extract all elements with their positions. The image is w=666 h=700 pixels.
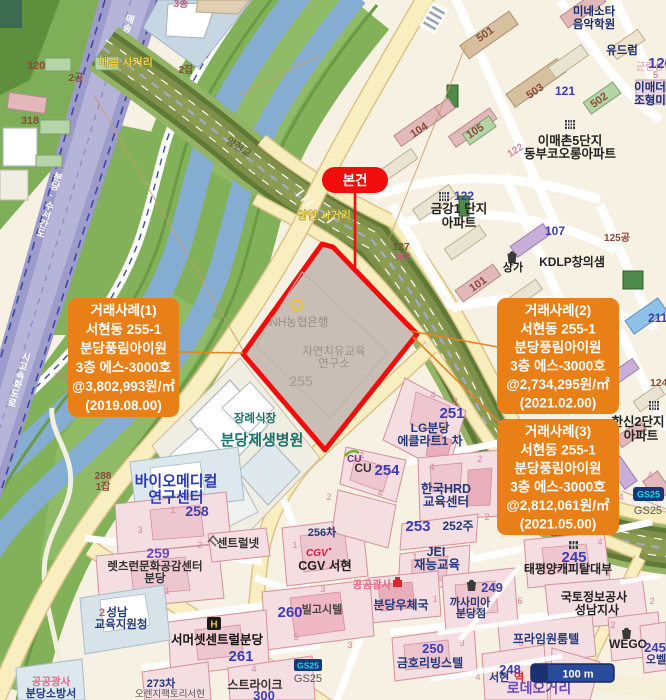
svg-text:245: 245 (644, 640, 666, 655)
svg-text:음악학원: 음악학원 (573, 17, 615, 31)
svg-text:GS25: GS25 (637, 490, 660, 500)
svg-text:254: 254 (374, 462, 400, 479)
svg-text:1잡: 1잡 (96, 481, 112, 493)
svg-text:1: 1 (432, 594, 437, 604)
svg-text:4: 4 (429, 462, 434, 472)
svg-text:분당풍림아이원: 분당풍림아이원 (515, 460, 602, 476)
svg-text:251: 251 (439, 405, 464, 422)
svg-text:CU: CU (354, 461, 371, 475)
svg-text:빌고시텔: 빌고시텔 (302, 602, 342, 616)
svg-text:공공광사: 공공광사 (32, 675, 71, 688)
svg-text:이매촌5단지: 이매촌5단지 (538, 133, 602, 148)
svg-text:256차: 256차 (308, 525, 337, 539)
svg-text:2: 2 (99, 607, 105, 619)
svg-text:동부코오롱아파트: 동부코오롱아파트 (524, 146, 617, 161)
svg-text:아파트: 아파트 (442, 215, 477, 230)
svg-text:GS25: GS25 (634, 505, 662, 517)
svg-text:3층 에스-3000호: 3층 에스-3000호 (510, 359, 606, 374)
svg-text:162: 162 (393, 251, 411, 263)
svg-text:318: 318 (21, 115, 39, 127)
svg-text:2: 2 (326, 492, 331, 502)
svg-text:@2,812,061원/㎡: @2,812,061원/㎡ (507, 497, 610, 513)
svg-text:서머셋센트럴분당: 서머셋센트럴분당 (171, 632, 264, 647)
svg-text:서현동 255-1: 서현동 255-1 (86, 322, 162, 337)
svg-text:211: 211 (648, 311, 666, 325)
svg-text:CGV: CGV (306, 548, 329, 559)
svg-text:GS25: GS25 (297, 661, 319, 671)
svg-text:프라임원룸텔: 프라임원룸텔 (513, 631, 579, 646)
svg-text:@3,802,993원/㎡: @3,802,993원/㎡ (72, 378, 175, 394)
svg-text:렛츠런문화공감센터: 렛츠런문화공감센터 (107, 559, 202, 573)
svg-text:5: 5 (293, 632, 298, 642)
svg-text:2: 2 (484, 512, 489, 522)
svg-text:분당: 분당 (144, 571, 166, 585)
svg-text:(2019.08.00): (2019.08.00) (85, 398, 162, 413)
svg-text:2: 2 (610, 620, 615, 630)
svg-text:미네소타: 미네소타 (573, 4, 616, 18)
svg-text:CGV 서현: CGV 서현 (298, 558, 352, 573)
svg-text:WEGO: WEGO (609, 637, 647, 651)
svg-text:1: 1 (164, 586, 169, 596)
svg-text:금강1 단지: 금강1 단지 (431, 201, 487, 216)
svg-text:125공: 125공 (604, 232, 630, 244)
svg-text:249: 249 (481, 580, 503, 595)
svg-text:분당제생병원: 분당제생병원 (221, 431, 304, 449)
svg-text:4: 4 (430, 390, 435, 400)
svg-text:분당풍림아이원: 분당풍림아이원 (515, 339, 602, 355)
svg-text:253: 253 (405, 518, 430, 535)
svg-text:261: 261 (228, 648, 253, 665)
svg-text:288: 288 (95, 471, 112, 482)
svg-text:이매더: 이매더 (634, 80, 666, 94)
svg-text:유드럼: 유드럼 (606, 44, 638, 57)
svg-text:6: 6 (517, 596, 522, 606)
svg-text:분당소방서: 분당소방서 (26, 686, 77, 700)
svg-text:260: 260 (277, 604, 302, 621)
svg-text:4: 4 (647, 470, 652, 480)
svg-text:재능교육: 재능교육 (414, 557, 461, 572)
svg-text:서현동 255-1: 서현동 255-1 (520, 443, 596, 458)
svg-text:교육센터: 교육센터 (423, 494, 469, 509)
svg-text:한국HRD: 한국HRD (421, 481, 471, 496)
svg-text:거래사례(2): 거래사례(2) (525, 303, 591, 318)
svg-text:KDLP창의샘: KDLP창의샘 (539, 254, 605, 269)
svg-text:LG분당: LG분당 (411, 420, 450, 435)
svg-text:121: 121 (555, 84, 575, 98)
svg-text:273차: 273차 (147, 676, 176, 690)
svg-text:분당풍림아이원: 분당풍림아이원 (80, 340, 167, 356)
svg-text:성남: 성남 (106, 605, 128, 619)
svg-text:122: 122 (454, 189, 474, 203)
svg-text:300: 300 (253, 688, 275, 700)
svg-text:공공광사: 공공광사 (353, 578, 392, 591)
svg-text:연구소: 연구소 (318, 357, 350, 370)
svg-text:자연치유교육: 자연치유교육 (302, 345, 365, 358)
svg-text:(2021.05.00): (2021.05.00) (520, 517, 597, 532)
svg-text:@2,734,295원/㎡: @2,734,295원/㎡ (507, 376, 610, 392)
svg-text:252주: 252주 (442, 519, 473, 533)
svg-text:거래사례(3): 거래사례(3) (525, 424, 591, 439)
svg-text:3: 3 (347, 640, 352, 650)
svg-text:서현동 255-1: 서현동 255-1 (520, 322, 596, 337)
svg-text:조형미: 조형미 (634, 93, 666, 107)
svg-text:4: 4 (251, 664, 256, 674)
svg-text:258: 258 (185, 503, 209, 519)
svg-text:금호리빙스텔: 금호리빙스텔 (397, 655, 463, 670)
svg-text:에클라트1 차: 에클라트1 차 (397, 433, 462, 448)
svg-text:오벨: 오벨 (646, 652, 666, 666)
svg-text:분당우체국: 분당우체국 (373, 597, 428, 612)
svg-text:센트럴넷: 센트럴넷 (217, 536, 260, 550)
svg-text:오렌지팩토리서현: 오렌지팩토리서현 (135, 689, 205, 700)
svg-text:100 m: 100 m (562, 669, 593, 681)
svg-text:거래사례(1): 거래사례(1) (90, 303, 156, 318)
svg-text:아파트: 아파트 (624, 428, 659, 443)
svg-text:본건: 본건 (343, 172, 368, 188)
svg-text:259: 259 (146, 545, 170, 561)
svg-text:1: 1 (170, 505, 175, 515)
svg-text:매송 사거리: 매송 사거리 (99, 55, 153, 69)
svg-text:H: H (210, 620, 217, 631)
svg-text:1: 1 (292, 540, 297, 550)
svg-text:양현 사거리: 양현 사거리 (297, 208, 351, 222)
svg-text:2공: 2공 (69, 72, 84, 84)
svg-text:성남지사: 성남지사 (575, 602, 619, 617)
svg-text:분당점: 분당점 (456, 606, 486, 620)
svg-text:2: 2 (197, 540, 202, 550)
svg-text:4: 4 (597, 537, 602, 547)
svg-text:3종: 3종 (174, 0, 189, 10)
svg-text:255: 255 (289, 373, 313, 389)
svg-text:장례식장: 장례식장 (234, 411, 277, 425)
svg-text:2: 2 (649, 596, 654, 606)
svg-text:3층 에스-3000호: 3층 에스-3000호 (510, 480, 606, 495)
svg-text:GS25: GS25 (294, 673, 322, 685)
svg-text:320: 320 (27, 60, 45, 72)
svg-text:2잡: 2잡 (179, 64, 195, 76)
svg-text:250: 250 (422, 641, 444, 656)
svg-text:2: 2 (477, 454, 482, 464)
svg-text:교육지원청: 교육지원청 (95, 617, 148, 631)
svg-text:3: 3 (137, 525, 142, 535)
svg-text:까사미아: 까사미아 (450, 595, 491, 609)
svg-text:4: 4 (618, 492, 623, 502)
svg-text:(2021.02.00): (2021.02.00) (520, 396, 597, 411)
svg-text:상가: 상가 (503, 260, 523, 274)
svg-text:3: 3 (320, 584, 325, 594)
svg-text:JEI: JEI (427, 545, 446, 559)
svg-text:국토정보공사: 국토정보공사 (561, 589, 627, 604)
svg-text:한신2단지: 한신2단지 (612, 414, 665, 429)
svg-text:태평양캐피탈대부: 태평양캐피탈대부 (524, 561, 612, 576)
svg-text:바이오메디컬: 바이오메디컬 (135, 472, 218, 490)
svg-text:124: 124 (650, 377, 666, 389)
svg-text:4: 4 (377, 488, 382, 498)
svg-text:107: 107 (545, 224, 565, 238)
svg-text:5: 5 (653, 70, 658, 80)
svg-text:3층 에스-3000호: 3층 에스-3000호 (76, 360, 172, 375)
svg-text:NH농협은행: NH농협은행 (270, 316, 329, 329)
